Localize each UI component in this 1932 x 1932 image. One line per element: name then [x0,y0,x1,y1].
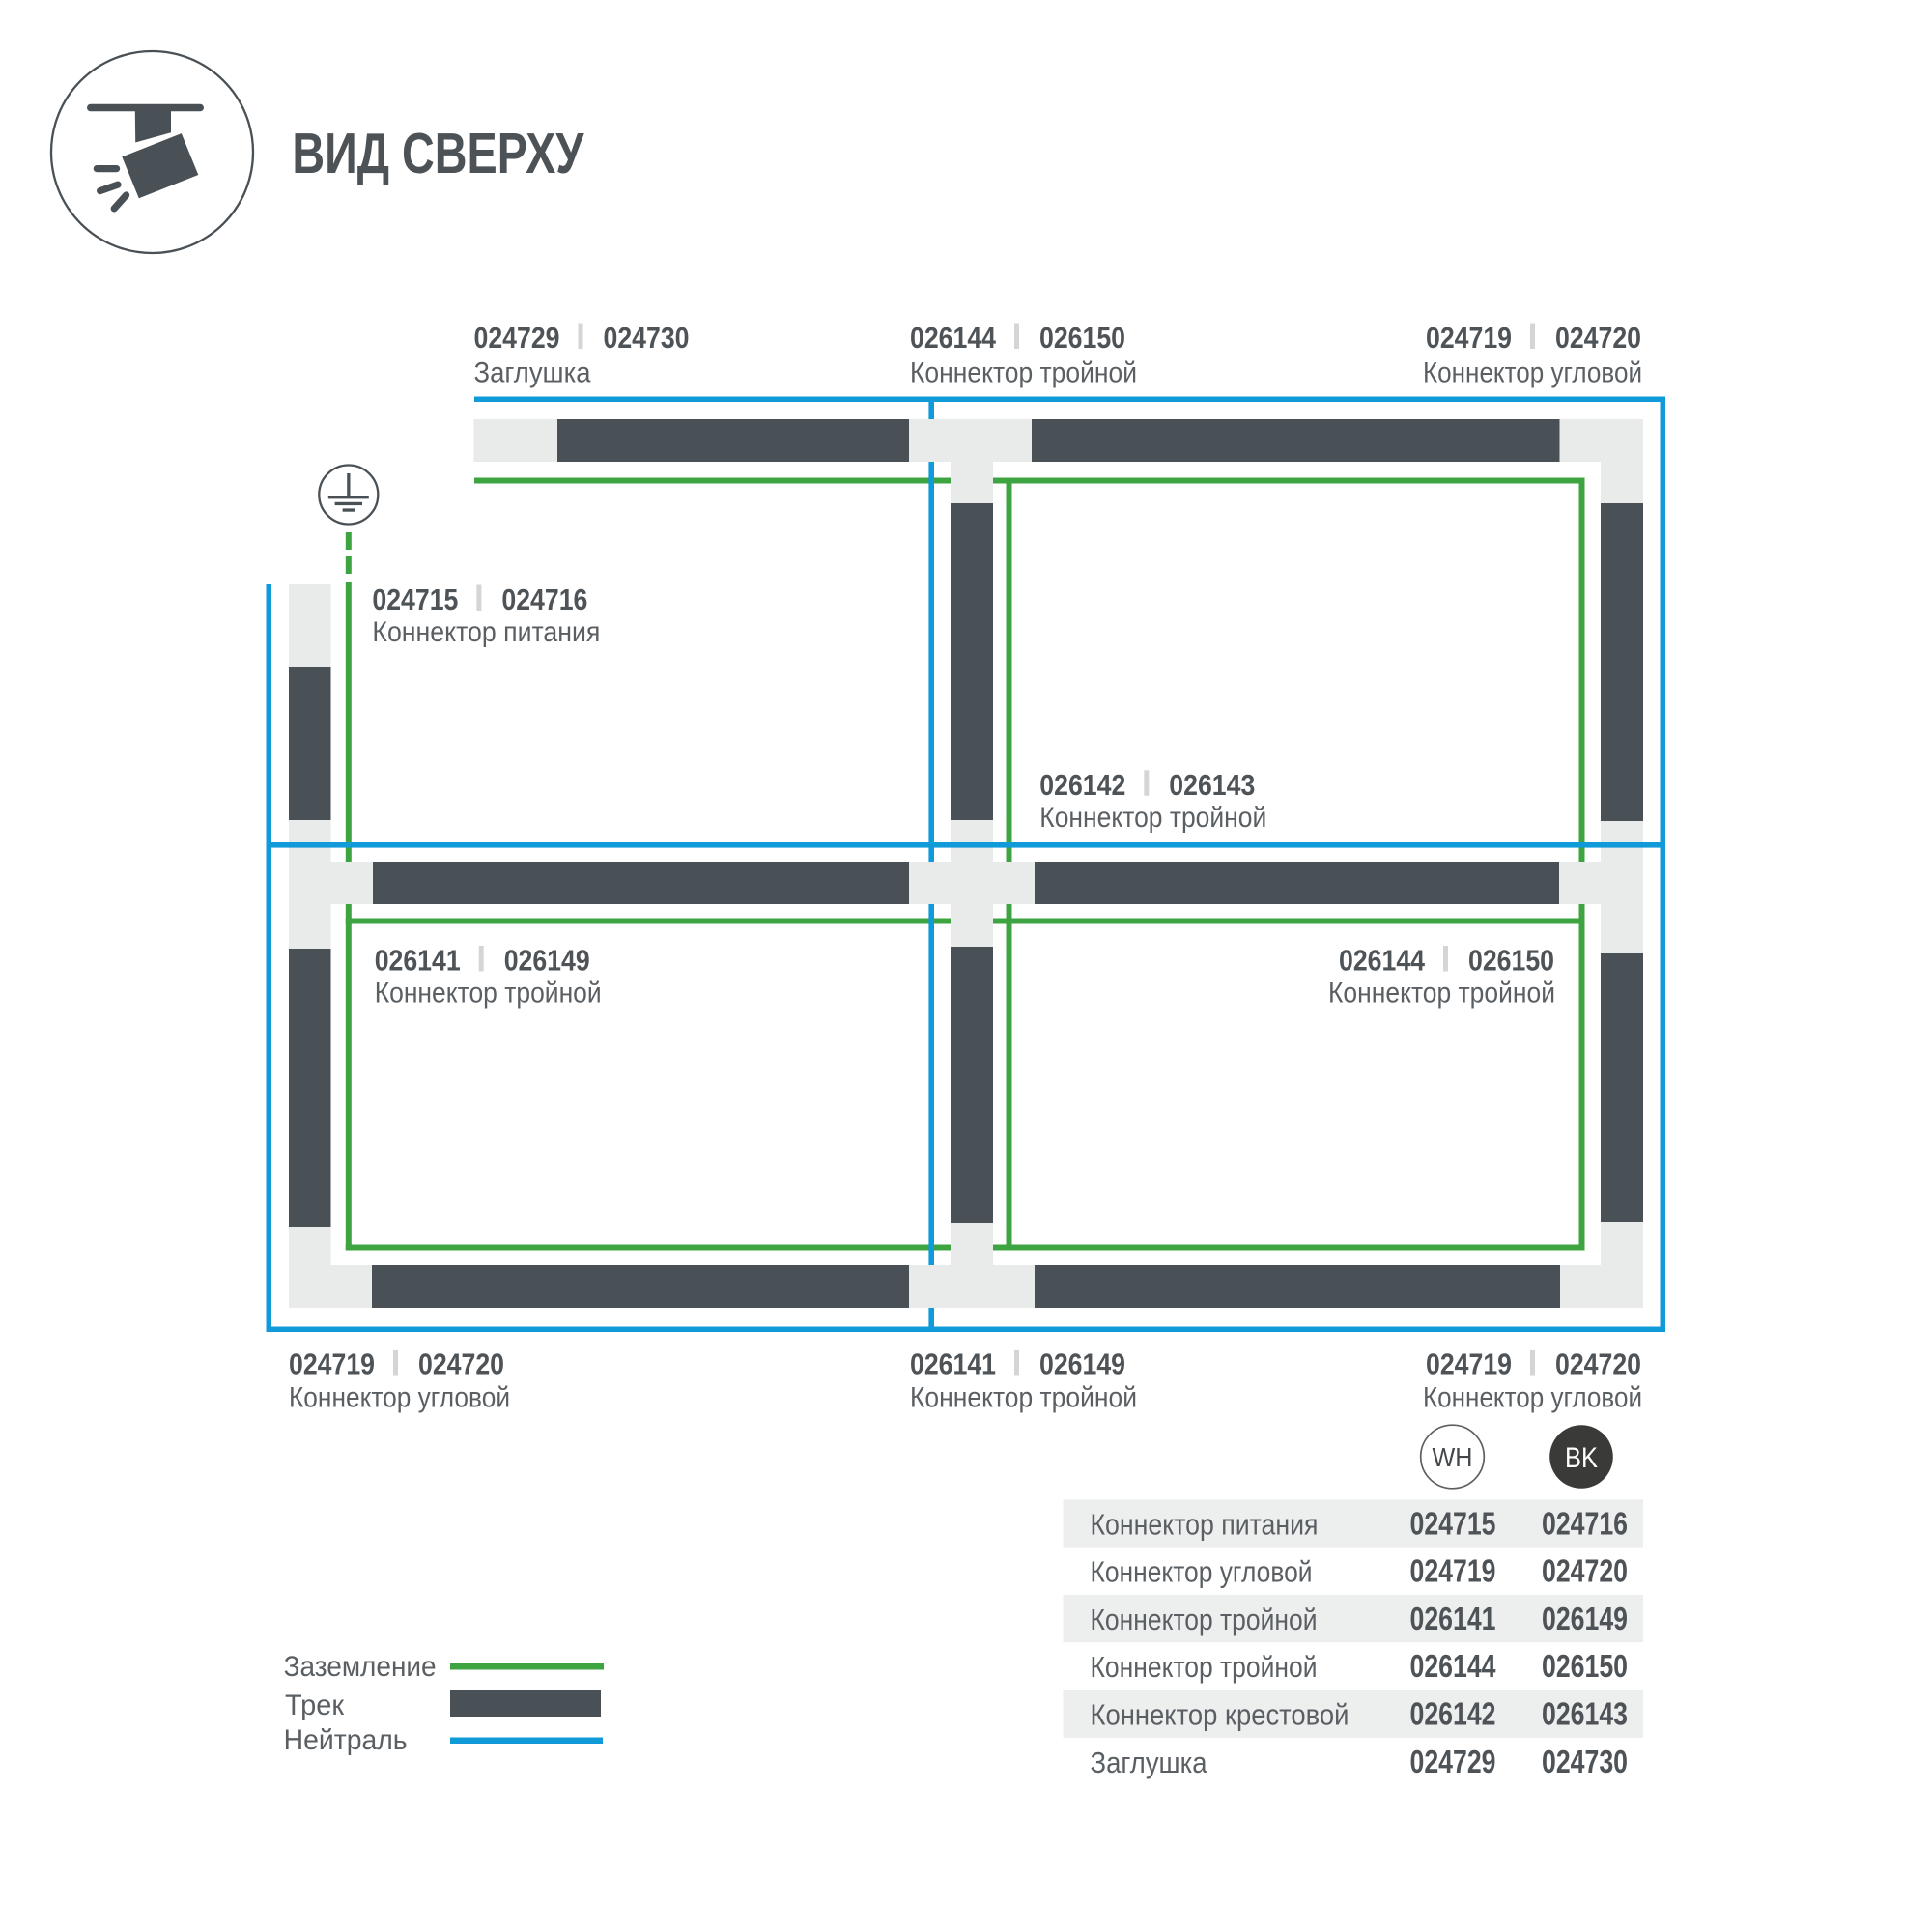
svg-text:024716: 024716 [1542,1505,1628,1541]
svg-text:026149: 026149 [504,944,590,978]
svg-text:Заглушка: Заглушка [1091,1746,1208,1779]
svg-text:026142: 026142 [1039,768,1125,802]
svg-text:026144: 026144 [910,321,997,355]
svg-text:024715: 024715 [1410,1505,1496,1541]
svg-text:026142: 026142 [1410,1696,1496,1732]
svg-text:Коннектор тройной: Коннектор тройной [375,978,602,1009]
svg-text:026141: 026141 [375,944,461,978]
svg-text:Коннектор тройной: Коннектор тройной [910,356,1137,388]
svg-text:026144: 026144 [1410,1648,1497,1684]
svg-text:024720: 024720 [1542,1553,1628,1589]
svg-text:Трек: Трек [285,1690,345,1721]
svg-text:024730: 024730 [1542,1744,1628,1779]
svg-text:Коннектор угловой: Коннектор угловой [289,1382,510,1414]
svg-text:026143: 026143 [1542,1696,1628,1732]
svg-text:024719: 024719 [1426,1348,1512,1381]
svg-text:026150: 026150 [1542,1648,1628,1684]
svg-text:Коннектор питания: Коннектор питания [1091,1507,1319,1541]
svg-text:Коннектор крестовой: Коннектор крестовой [1091,1698,1350,1732]
svg-text:024716: 024716 [501,582,587,616]
svg-text:024720: 024720 [1555,321,1641,355]
svg-text:Коннектор питания: Коннектор питания [372,616,600,648]
svg-text:026149: 026149 [1542,1601,1628,1636]
svg-text:Коннектор тройной: Коннектор тройной [1039,802,1266,834]
svg-text:024719: 024719 [1410,1553,1496,1589]
svg-text:024730: 024730 [604,321,690,355]
svg-text:ВИД СВЕРХУ: ВИД СВЕРХУ [292,122,584,185]
svg-text:Коннектор угловой: Коннектор угловой [1091,1555,1313,1589]
svg-text:Коннектор тройной: Коннектор тройной [1091,1650,1318,1684]
svg-text:026144: 026144 [1339,944,1426,978]
svg-text:024729: 024729 [1410,1744,1496,1779]
svg-text:026141: 026141 [910,1348,996,1381]
svg-text:026150: 026150 [1468,944,1554,978]
svg-text:026149: 026149 [1039,1348,1125,1381]
svg-text:024729: 024729 [474,321,560,355]
svg-text:WH: WH [1433,1442,1473,1472]
svg-text:Коннектор угловой: Коннектор угловой [1423,356,1642,388]
svg-text:026141: 026141 [1410,1601,1496,1636]
svg-text:026143: 026143 [1169,768,1255,802]
svg-text:Заземление: Заземление [284,1651,437,1683]
svg-text:024715: 024715 [372,582,458,616]
svg-text:026150: 026150 [1039,321,1125,355]
svg-text:Коннектор тройной: Коннектор тройной [1091,1603,1318,1636]
svg-text:Заглушка: Заглушка [474,356,591,388]
svg-text:Коннектор тройной: Коннектор тройной [910,1382,1137,1414]
svg-text:BK: BK [1565,1442,1598,1474]
svg-text:Коннектор тройной: Коннектор тройной [1328,978,1555,1009]
svg-text:024719: 024719 [1426,321,1512,355]
svg-text:Коннектор угловой: Коннектор угловой [1423,1382,1642,1414]
svg-text:Нейтраль: Нейтраль [284,1724,408,1756]
svg-text:024720: 024720 [1555,1348,1641,1381]
svg-text:024720: 024720 [418,1348,504,1381]
svg-text:024719: 024719 [289,1348,375,1381]
